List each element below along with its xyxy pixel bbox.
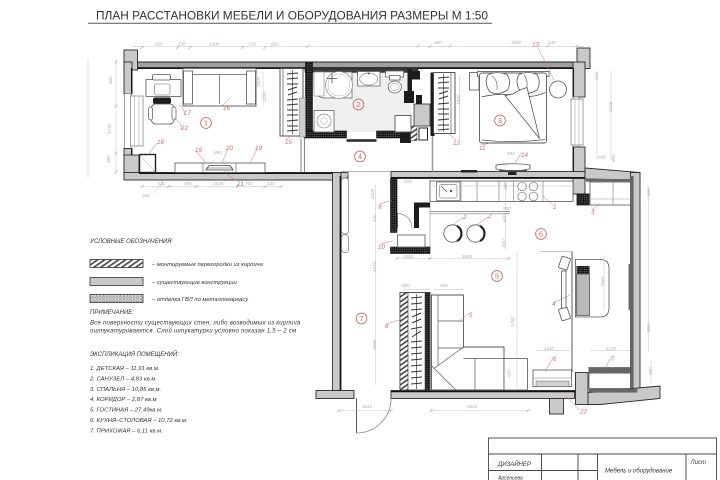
svg-text:1800: 1800 bbox=[456, 94, 461, 105]
svg-text:680: 680 bbox=[271, 42, 279, 47]
svg-text:7: 7 bbox=[611, 356, 615, 363]
svg-text:1800: 1800 bbox=[462, 254, 473, 259]
svg-text:680: 680 bbox=[214, 150, 222, 155]
svg-text:1900: 1900 bbox=[209, 42, 220, 47]
svg-text:6. КУХНЯ–СТОЛОВАЯ – 10,72: 6. КУХНЯ–СТОЛОВАЯ – 10,72 кв.м. bbox=[90, 418, 188, 424]
svg-text:1030: 1030 bbox=[403, 254, 414, 259]
svg-text:ДИЗАЙНЕР: ДИЗАЙНЕР bbox=[497, 460, 531, 468]
svg-text:1540: 1540 bbox=[600, 276, 605, 287]
svg-text:18: 18 bbox=[157, 139, 164, 146]
svg-text:11: 11 bbox=[479, 145, 485, 152]
svg-text:1610: 1610 bbox=[362, 404, 373, 409]
svg-text:390: 390 bbox=[503, 206, 511, 211]
svg-text:700: 700 bbox=[245, 181, 253, 186]
svg-text:1395: 1395 bbox=[370, 188, 375, 199]
svg-text:680: 680 bbox=[434, 40, 442, 45]
svg-text:130: 130 bbox=[178, 42, 186, 47]
svg-text:17: 17 bbox=[184, 110, 191, 117]
svg-text:890: 890 bbox=[646, 324, 651, 332]
svg-text:7. ПРИХОЖАЯ – 6,11 кв.м.: 7. ПРИХОЖАЯ – 6,11 кв.м. bbox=[90, 428, 163, 434]
svg-text:2: 2 bbox=[487, 213, 492, 220]
svg-text:4. КОРИДОР – 2,87 кв.м.: 4. КОРИДОР – 2,87 кв.м. bbox=[90, 397, 158, 403]
svg-text:890: 890 bbox=[507, 369, 512, 377]
svg-text:1: 1 bbox=[553, 204, 556, 211]
svg-text:1020: 1020 bbox=[213, 181, 224, 186]
svg-text:20: 20 bbox=[225, 145, 233, 152]
svg-text:920: 920 bbox=[155, 42, 163, 47]
svg-text:400: 400 bbox=[501, 239, 506, 247]
svg-text:680: 680 bbox=[402, 283, 410, 288]
svg-text:900: 900 bbox=[440, 283, 448, 288]
svg-text:2. САНУЗЕЛ – 4,83 кв.м.: 2. САНУЗЕЛ – 4,83 кв.м. bbox=[89, 376, 157, 382]
svg-text:710: 710 bbox=[248, 42, 256, 47]
svg-text:2620: 2620 bbox=[466, 404, 478, 409]
svg-text:– существующие конструкции: – существующие конструкции bbox=[151, 280, 237, 286]
svg-text:1. ДЕТСКАЯ – 11,91 кв.м: 1. ДЕТСКАЯ – 11,91 кв.м. bbox=[90, 366, 160, 372]
svg-text:430: 430 bbox=[267, 181, 275, 186]
svg-text:1500: 1500 bbox=[256, 76, 261, 87]
svg-text:7: 7 bbox=[359, 314, 363, 323]
svg-text:1070: 1070 bbox=[372, 261, 377, 272]
svg-text:1170: 1170 bbox=[606, 346, 616, 351]
svg-text:6: 6 bbox=[539, 230, 543, 239]
svg-text:4: 4 bbox=[358, 152, 362, 161]
svg-text:– отделка ГВЛ по металлокар: – отделка ГВЛ по металлокаркасу bbox=[151, 297, 249, 303]
svg-text:ЭКСПЛИКАЦИЯ ПОМЕЩЕНИЙ:: ЭКСПЛИКАЦИЯ ПОМЕЩЕНИЙ: bbox=[90, 350, 179, 358]
svg-text:1740: 1740 bbox=[107, 123, 112, 134]
svg-text:2: 2 bbox=[356, 100, 360, 109]
svg-text:9: 9 bbox=[378, 204, 382, 211]
svg-text:530: 530 bbox=[158, 181, 166, 186]
svg-text:3: 3 bbox=[498, 116, 502, 125]
svg-text:690: 690 bbox=[598, 155, 606, 160]
svg-text:600: 600 bbox=[502, 214, 507, 222]
svg-text:940: 940 bbox=[507, 151, 515, 156]
svg-text:410: 410 bbox=[594, 72, 599, 80]
svg-text:13: 13 bbox=[532, 42, 539, 49]
svg-text:19: 19 bbox=[195, 147, 202, 154]
svg-text:22: 22 bbox=[579, 409, 587, 416]
svg-text:Лист: Лист bbox=[690, 460, 706, 466]
svg-text:оштукатуриваются. Слой штука: оштукатуриваются. Слой штукатурки условн… bbox=[90, 328, 296, 335]
svg-text:2: 2 bbox=[462, 214, 467, 221]
svg-text:УСЛОВНЫЕ ОБОЗНАЧЕНИЯ:: УСЛОВНЫЕ ОБОЗНАЧЕНИЯ: bbox=[89, 239, 173, 245]
svg-text:4: 4 bbox=[552, 301, 556, 308]
svg-text:6: 6 bbox=[553, 356, 557, 363]
svg-text:3: 3 bbox=[591, 209, 595, 216]
svg-text:22: 22 bbox=[180, 125, 188, 132]
svg-text:450: 450 bbox=[106, 155, 111, 163]
svg-text:3. СПАЛЬНЯ – 10,85 кв.м.: 3. СПАЛЬНЯ – 10,85 кв.м. bbox=[90, 387, 161, 393]
svg-text:ПРИМЕЧАНИЕ:: ПРИМЕЧАНИЕ: bbox=[90, 310, 134, 316]
svg-text:2590: 2590 bbox=[372, 339, 377, 351]
svg-text:5: 5 bbox=[469, 312, 473, 319]
svg-text:ПЛАН РАССТАНОВКИ МЕБЕЛИ И: ПЛАН РАССТАНОВКИ МЕБЕЛИ И ОБОРУДОВАНИЯ Р… bbox=[96, 11, 488, 23]
svg-text:2000: 2000 bbox=[608, 101, 613, 113]
svg-text:5. ГОСТИНАЯ – 27,49кв.м.: 5. ГОСТИНАЯ – 27,49кв.м. bbox=[90, 408, 163, 414]
svg-text:5: 5 bbox=[495, 272, 499, 281]
svg-text:– монтируемые перегородки из: – монтируемые перегородки из кирпича bbox=[151, 262, 264, 268]
svg-text:8: 8 bbox=[385, 323, 389, 330]
svg-text:14: 14 bbox=[521, 152, 528, 159]
svg-text:980: 980 bbox=[108, 76, 113, 84]
svg-text:700: 700 bbox=[184, 181, 192, 186]
svg-text:1: 1 bbox=[204, 119, 208, 128]
svg-text:Мебель и оборудование: Мебель и оборудование bbox=[605, 469, 673, 475]
svg-text:1800: 1800 bbox=[511, 40, 522, 45]
svg-text:540: 540 bbox=[548, 40, 556, 45]
svg-text:16: 16 bbox=[223, 105, 230, 112]
svg-text:490: 490 bbox=[648, 367, 653, 375]
svg-text:1430: 1430 bbox=[262, 91, 267, 102]
svg-text:600: 600 bbox=[646, 188, 651, 196]
svg-text:15: 15 bbox=[285, 139, 292, 146]
svg-text:920: 920 bbox=[404, 179, 412, 184]
svg-text:1780: 1780 bbox=[510, 316, 515, 327]
svg-text:120: 120 bbox=[372, 214, 377, 222]
svg-text:560: 560 bbox=[142, 193, 150, 198]
svg-text:400: 400 bbox=[503, 182, 508, 190]
svg-text:12: 12 bbox=[453, 140, 460, 147]
svg-text:1130: 1130 bbox=[544, 346, 554, 351]
svg-text:Арсеньева: Арсеньева bbox=[497, 476, 523, 480]
svg-text:890: 890 bbox=[611, 154, 616, 162]
svg-text:Все поверхности существующих: Все поверхности существующих стен, либо … bbox=[90, 321, 301, 327]
svg-text:19: 19 bbox=[255, 145, 262, 152]
svg-text:10: 10 bbox=[378, 244, 385, 251]
